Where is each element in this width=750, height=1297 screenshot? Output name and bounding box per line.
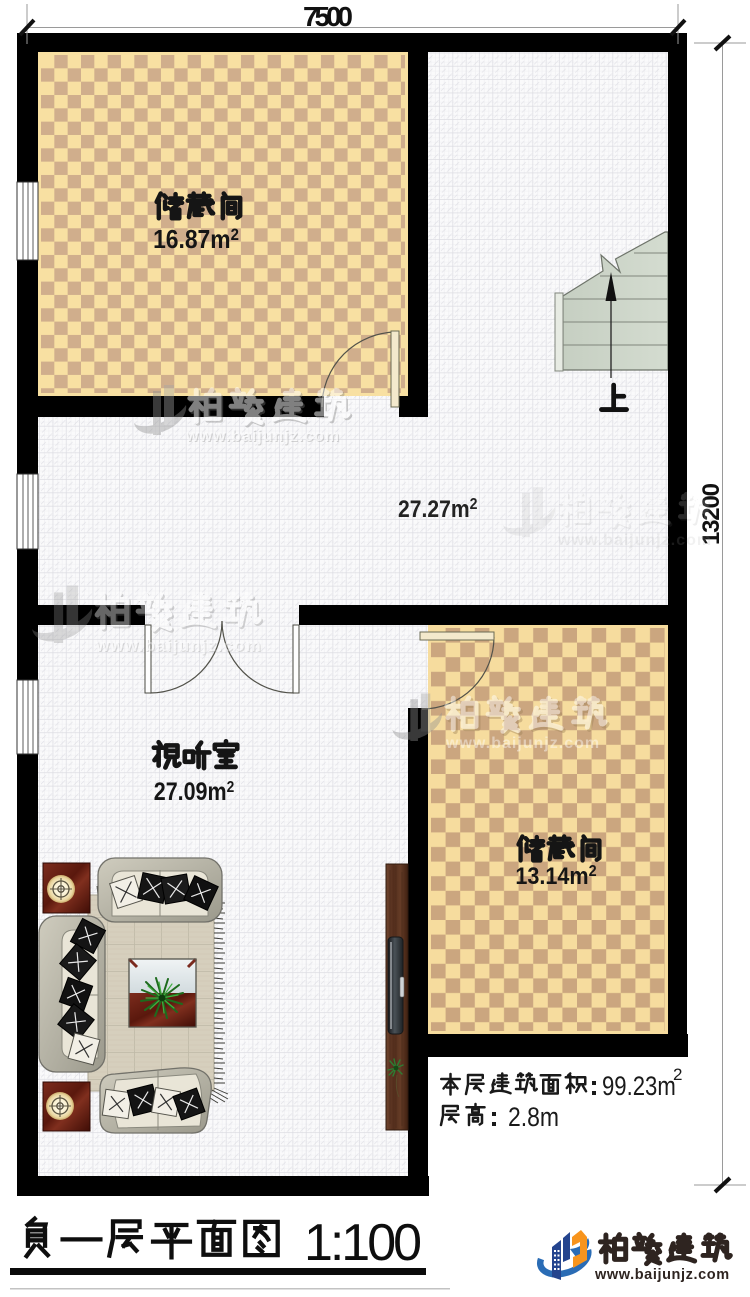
svg-text:27.27m2: 27.27m2 xyxy=(398,495,477,522)
svg-text:7500: 7500 xyxy=(303,1,353,32)
svg-text:www.baijunjz.com: www.baijunjz.com xyxy=(185,428,340,445)
svg-text:2.8m: 2.8m xyxy=(508,1102,559,1132)
svg-text:www.baijunjz.com: www.baijunjz.com xyxy=(594,1267,730,1283)
svg-text:www.baijunjz.com: www.baijunjz.com xyxy=(557,532,712,549)
svg-text:2: 2 xyxy=(673,1065,682,1084)
svg-text:99.23m: 99.23m xyxy=(602,1072,676,1102)
svg-text:27.09m2: 27.09m2 xyxy=(154,777,235,805)
svg-text:www.baijunjz.com: www.baijunjz.com xyxy=(445,735,600,752)
svg-text:www.baijunjz.com: www.baijunjz.com xyxy=(95,636,262,655)
svg-text:13.14m2: 13.14m2 xyxy=(515,862,596,889)
svg-text:16.87m2: 16.87m2 xyxy=(153,226,239,255)
svg-text:1:100: 1:100 xyxy=(304,1214,422,1272)
